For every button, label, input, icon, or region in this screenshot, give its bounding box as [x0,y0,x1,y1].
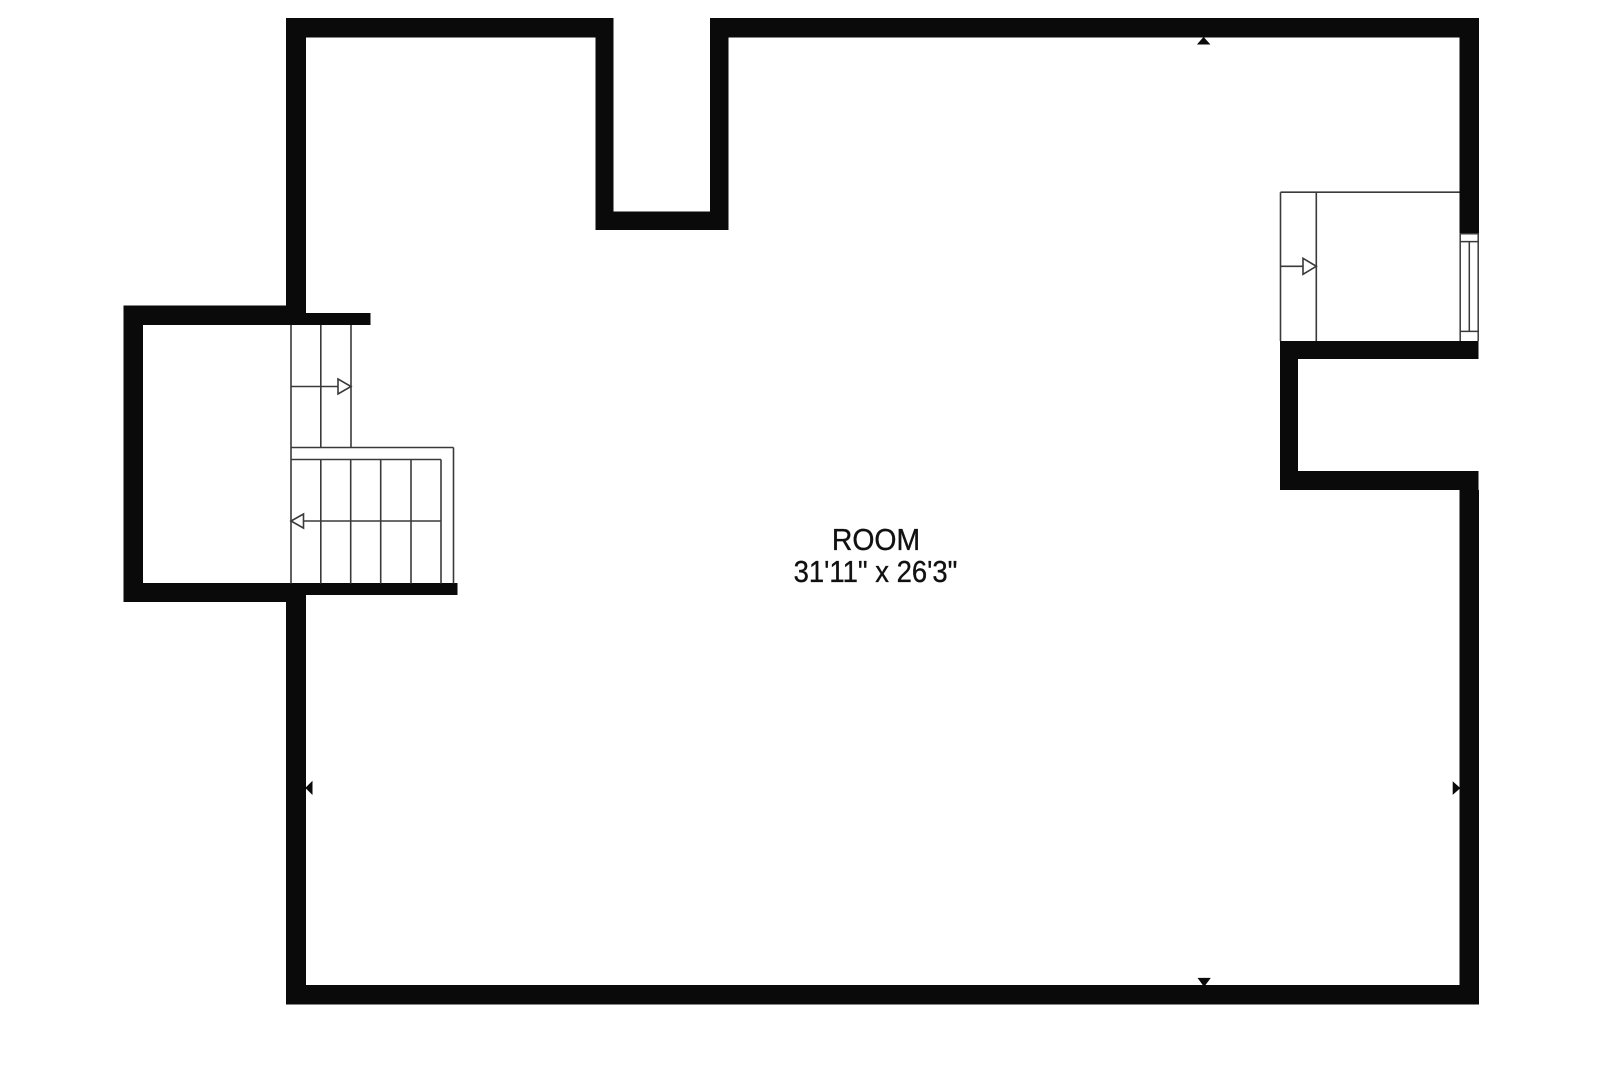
svg-text:31'11" x 26'3": 31'11" x 26'3" [794,556,958,589]
svg-text:ROOM: ROOM [832,523,920,557]
